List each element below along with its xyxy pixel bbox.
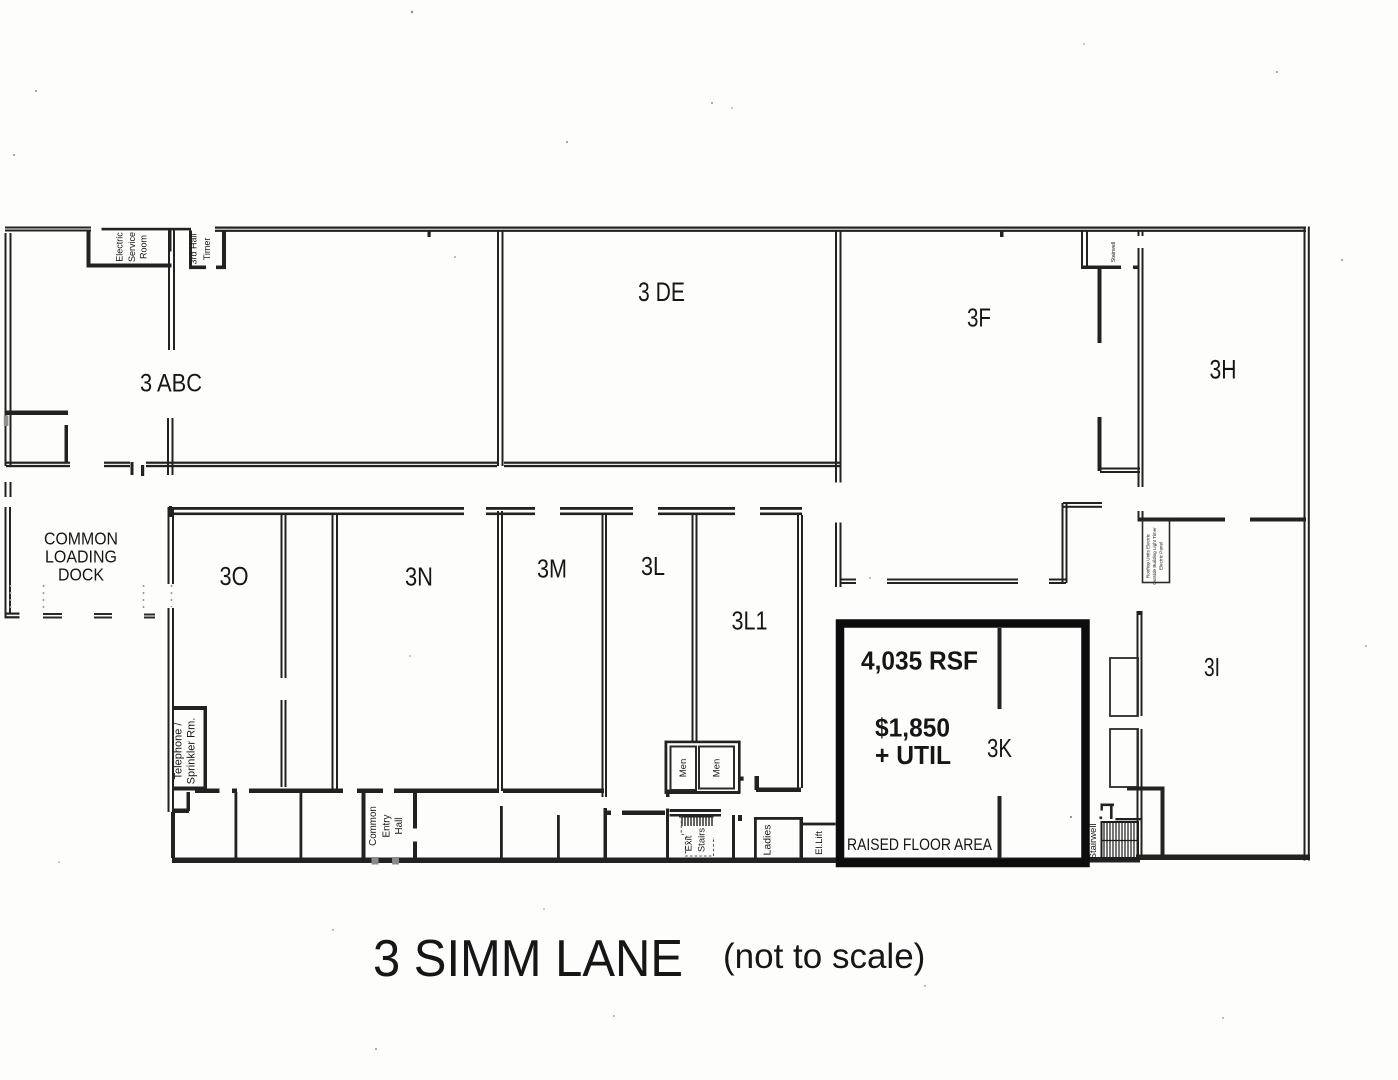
svg-text:Room: Room [139,235,149,259]
svg-text:3rd Hall: 3rd Hall [189,233,199,264]
svg-text:Service: Service [127,232,137,262]
svg-text:3F: 3F [967,303,991,333]
svg-text:Hall: Hall [394,818,405,835]
svg-text:$1,850: $1,850 [875,713,950,743]
svg-text:COMMON: COMMON [44,529,118,549]
svg-text:Rooftop Units Electric: Rooftop Units Electric [1146,533,1151,578]
svg-text:3K: 3K [987,733,1013,763]
svg-text:3H: 3H [1210,355,1237,385]
svg-text:Outside Building Light Timer: Outside Building Light Timer [1152,527,1157,585]
svg-text:Entry: Entry [382,814,393,837]
svg-text:Timer: Timer [202,238,212,261]
svg-text:3I: 3I [1204,652,1220,682]
svg-text:Men: Men [678,759,689,777]
svg-text:3N: 3N [405,562,433,592]
svg-text:RAISED FLOOR AREA: RAISED FLOOR AREA [847,836,992,854]
svg-text:El.Lift: El.Lift [814,831,825,855]
svg-text:3 ABC: 3 ABC [140,370,202,398]
svg-text:(not to scale): (not to scale) [723,937,925,976]
svg-text:Common: Common [368,806,379,846]
svg-text:Stairs: Stairs [697,828,708,853]
svg-text:DOCK: DOCK [58,565,104,585]
svg-text:Stairwell: Stairwell [1111,242,1117,263]
svg-text:Electric: Electric [115,232,125,262]
svg-text:Sprinkler Rm.: Sprinkler Rm. [186,718,198,785]
svg-text:Exit: Exit [684,835,695,851]
svg-text:Men: Men [712,759,723,777]
svg-text:3 SIMM LANE: 3 SIMM LANE [373,930,683,988]
svg-text:3M: 3M [537,554,567,584]
svg-text:3L1: 3L1 [732,606,768,636]
svg-text:3 DE: 3 DE [638,277,685,307]
svg-text:LOADING: LOADING [45,547,117,567]
svg-text:3L: 3L [641,551,665,581]
svg-text:Telephone /: Telephone / [173,722,185,780]
svg-text:+ UTIL: + UTIL [875,740,951,770]
svg-text:Stairwell: Stairwell [1088,823,1099,859]
svg-text:4,035 RSF: 4,035 RSF [861,646,978,676]
svg-text:Ladies: Ladies [762,825,774,856]
svg-text:Electric Panel: Electric Panel [1159,542,1164,570]
svg-text:3O: 3O [220,561,249,591]
